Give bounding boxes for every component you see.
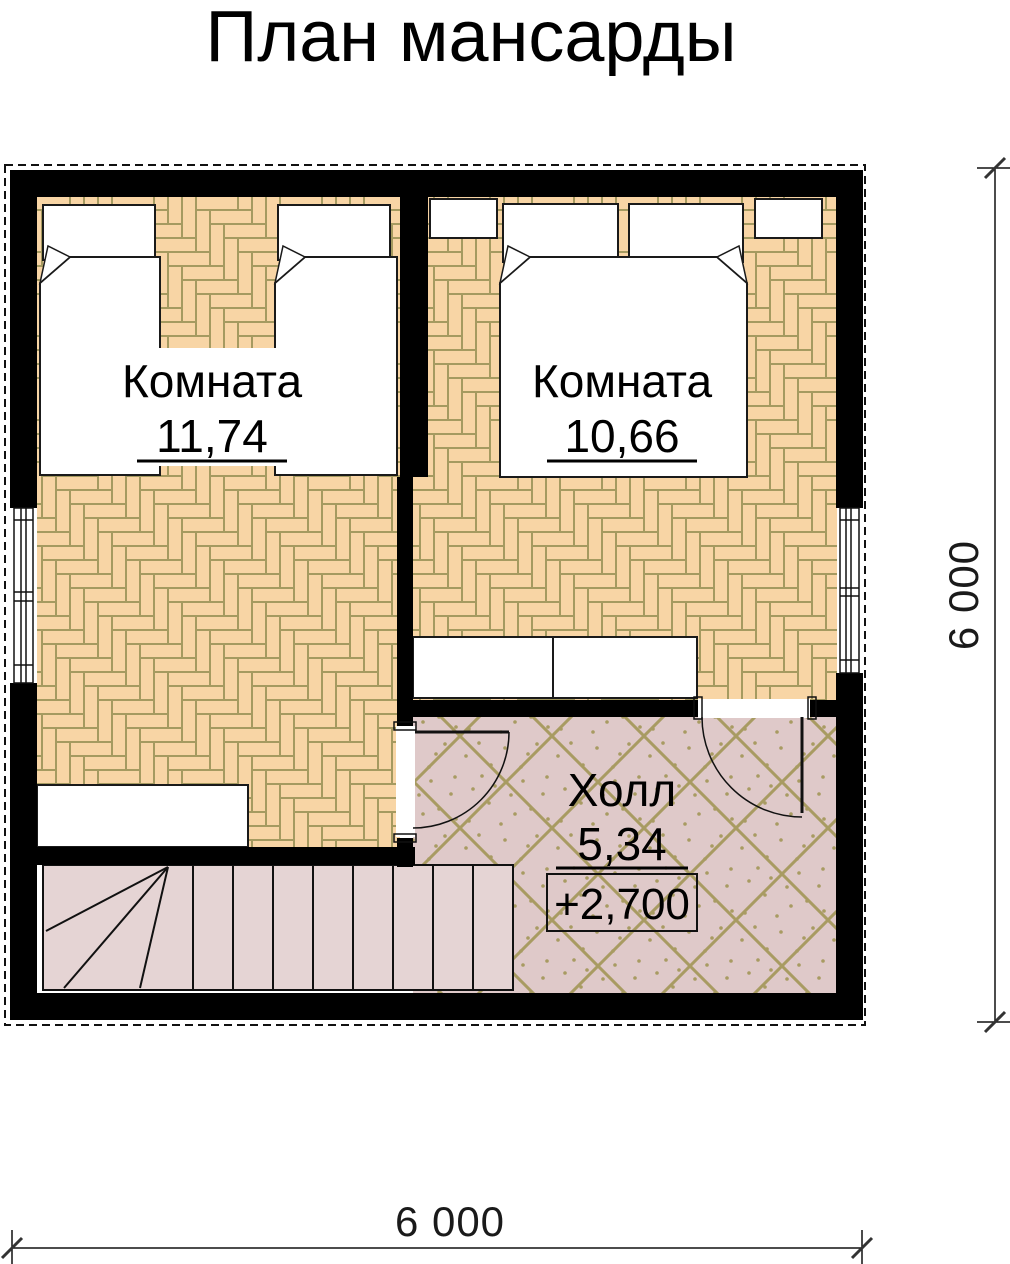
wall-partition-upper bbox=[397, 477, 413, 727]
page-title: План мансарды bbox=[205, 0, 736, 77]
wall-top bbox=[10, 170, 863, 197]
window-right bbox=[837, 508, 862, 673]
hall-area: 5,34 bbox=[577, 818, 667, 870]
dimension-bottom: 6 000 bbox=[2, 1198, 872, 1264]
wall-hall-top-left bbox=[413, 700, 698, 717]
page: План мансарды bbox=[0, 0, 1010, 1264]
wall-right-upper bbox=[836, 170, 863, 508]
room-2-area: 10,66 bbox=[564, 410, 679, 462]
room-1-area: 11,74 bbox=[156, 410, 268, 462]
hall-label: Холл bbox=[568, 764, 676, 816]
wall-right-lower bbox=[836, 673, 863, 1020]
door-opening bbox=[698, 699, 810, 718]
wall-room-divider bbox=[400, 197, 428, 477]
wall-room1-bottom bbox=[10, 847, 415, 865]
cabinet bbox=[37, 785, 248, 847]
dimension-text-right: 6 000 bbox=[940, 540, 987, 650]
nightstand-left bbox=[430, 199, 497, 238]
window-left bbox=[11, 508, 36, 683]
wall-left-upper bbox=[10, 170, 37, 508]
dimension-right: 6 000 bbox=[940, 158, 1010, 1032]
room-1-label: Комната bbox=[122, 355, 303, 407]
staircase-outline bbox=[43, 865, 513, 990]
room-2-label: Комната bbox=[532, 355, 713, 407]
staircase bbox=[43, 865, 513, 990]
dresser bbox=[413, 637, 697, 698]
door-opening bbox=[396, 726, 415, 837]
dimension-text-bottom: 6 000 bbox=[395, 1198, 505, 1245]
floor-plan-canvas: План мансарды bbox=[0, 0, 1010, 1264]
nightstand-right bbox=[755, 199, 822, 238]
wall-bottom bbox=[10, 993, 863, 1020]
wall-hall-top-right bbox=[810, 700, 838, 717]
elevation-marker-value: +2,700 bbox=[554, 880, 690, 929]
